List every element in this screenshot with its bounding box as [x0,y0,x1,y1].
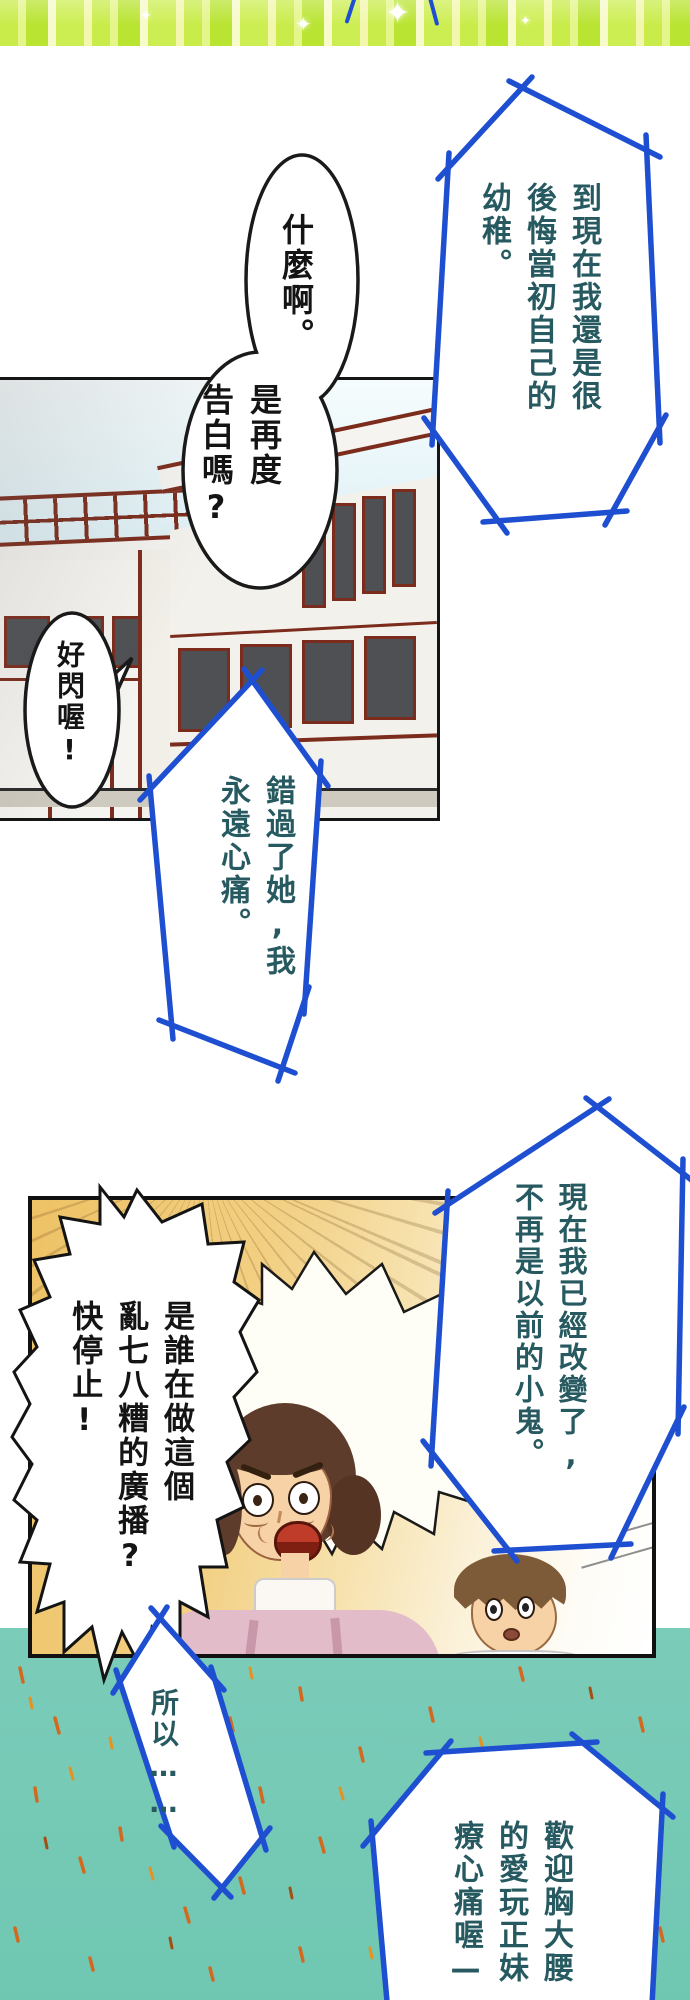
mother-eye-right [288,1481,320,1515]
speech-text-changed: 現在我已經改變了, 不再是以前的小鬼。 [498,1182,592,1512]
sweater-strap [330,1618,344,1658]
mother-hair-bun [326,1475,381,1555]
speech-text-so: 所以…… [150,1688,184,1878]
speech-text-welcome: 歡迎胸大腰 的愛玩正妹 療心痛喔— [440,1820,578,2000]
speech-text-who-radio: 是誰在做這個 亂七八糟的廣播? 快停止! [56,1300,198,1640]
speech-text-what-top: 什麼啊。 [282,213,320,393]
boy-eye-right [517,1596,535,1619]
boy-character [449,1554,579,1658]
sparkle-icon: ✦ [385,0,410,31]
speech-text-what-bottom: 是再度 告白嗎? [192,383,288,603]
sparkle-icon: ✦ [520,14,531,29]
sparkle-icon: ✦ [295,12,312,36]
boy-shirt [449,1650,581,1658]
boy-mouth [503,1628,520,1641]
boy-eye-left [485,1598,503,1621]
speech-text-missed: 錯過了她,我 永遠心痛。 [210,775,300,1065]
comic-page: ✦ ✦ ✦ ✦ [0,0,690,2000]
speech-text-dazzle: 好閃喔! [56,640,90,800]
speech-bubble-so-outline [95,1600,290,1900]
sparkle-icon: ✦ [140,8,152,24]
speech-text-regret: 到現在我還是很 後悔當初自己的 幼稚。 [468,182,606,512]
